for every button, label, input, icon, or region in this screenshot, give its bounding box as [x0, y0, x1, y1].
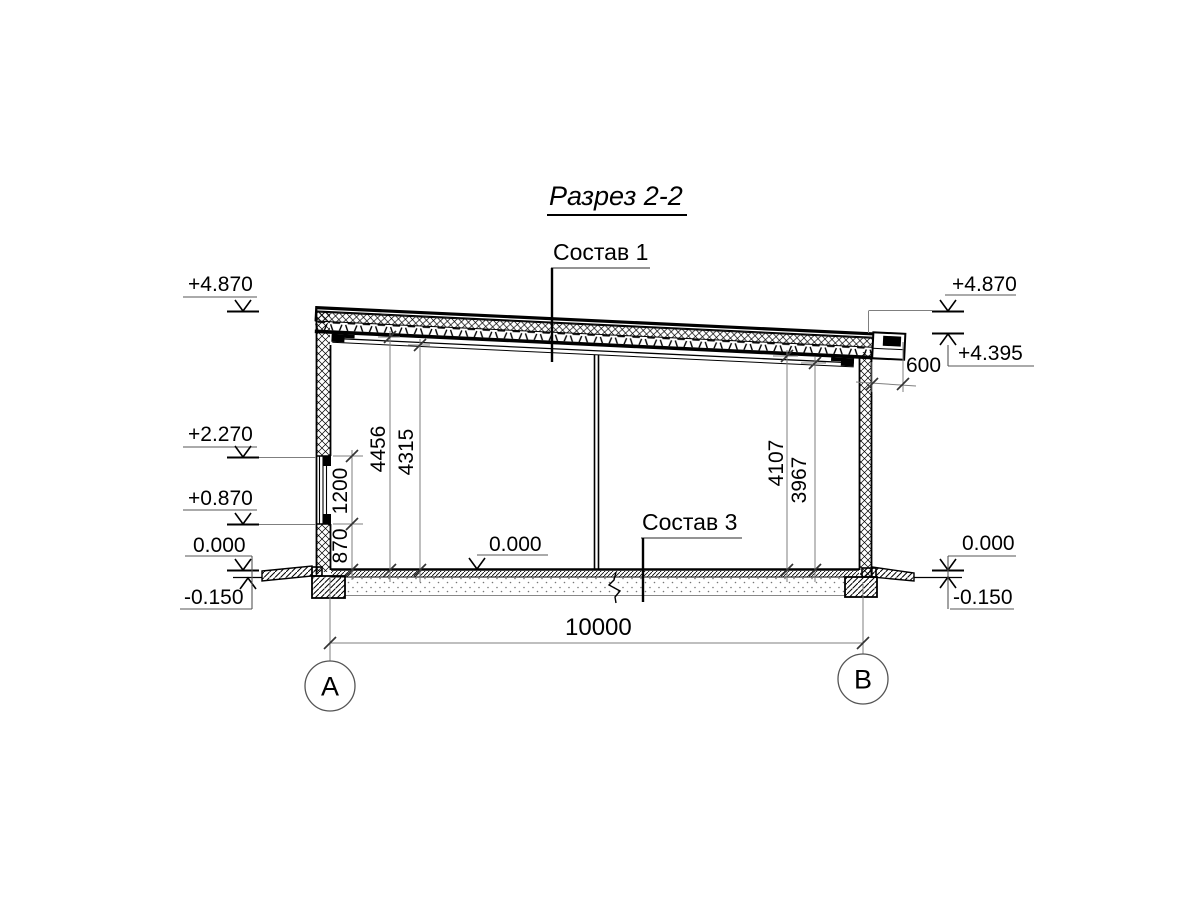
axis-label-a: A [321, 672, 339, 703]
section-drawing-sheet: Разрез 2-2 Состав 1 Состав 3 +4.870 +2.2… [0, 0, 1200, 900]
dim-span: 10000 [565, 616, 632, 640]
elevation-left-0870: +0.870 [188, 488, 253, 509]
elevation-right-minus0150: -0.150 [953, 587, 1013, 608]
dim-1200: 1200 [329, 468, 353, 515]
corbel-left [331, 334, 354, 343]
dimension-ticks [324, 331, 909, 649]
dim-3967: 3967 [788, 457, 812, 504]
dim-4315: 4315 [395, 429, 419, 476]
dim-roof-overhang: 600 [906, 355, 941, 376]
elevation-left-0000: 0.000 [193, 535, 246, 556]
center-column [595, 355, 599, 570]
callout-sostav3: Состав 3 [642, 511, 737, 534]
elevation-left-4870: +4.870 [188, 274, 253, 295]
roof-assembly [314, 306, 905, 369]
elevation-floor-interior: 0.000 [489, 534, 542, 555]
floor-slab [331, 570, 859, 596]
callout-sostav1: Состав 1 [553, 241, 648, 264]
axis-label-b: B [854, 665, 872, 696]
dim-870: 870 [329, 528, 353, 563]
section-drawing [0, 0, 1200, 900]
window-sill [323, 514, 331, 524]
dim-4456: 4456 [367, 426, 391, 473]
elevation-right-4870: +4.870 [952, 274, 1017, 295]
elevation-left-2270: +2.270 [188, 424, 253, 445]
elevation-right-0000: 0.000 [962, 533, 1015, 554]
dim-4107: 4107 [765, 440, 789, 487]
elevation-left-minus0150: -0.150 [184, 587, 244, 608]
window-lintel [323, 456, 331, 466]
drawing-title: Разрез 2-2 [547, 183, 687, 216]
elevation-right-4395: +4.395 [958, 343, 1023, 364]
